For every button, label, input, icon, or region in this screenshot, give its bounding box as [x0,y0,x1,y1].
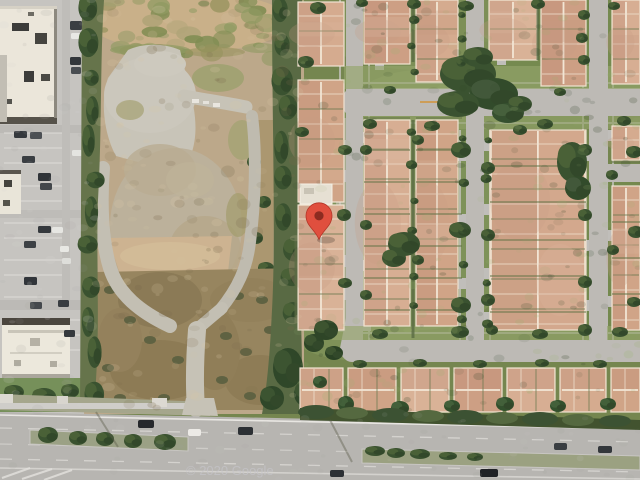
svg-text:© 2020 Google: © 2020 Google [186,463,274,478]
